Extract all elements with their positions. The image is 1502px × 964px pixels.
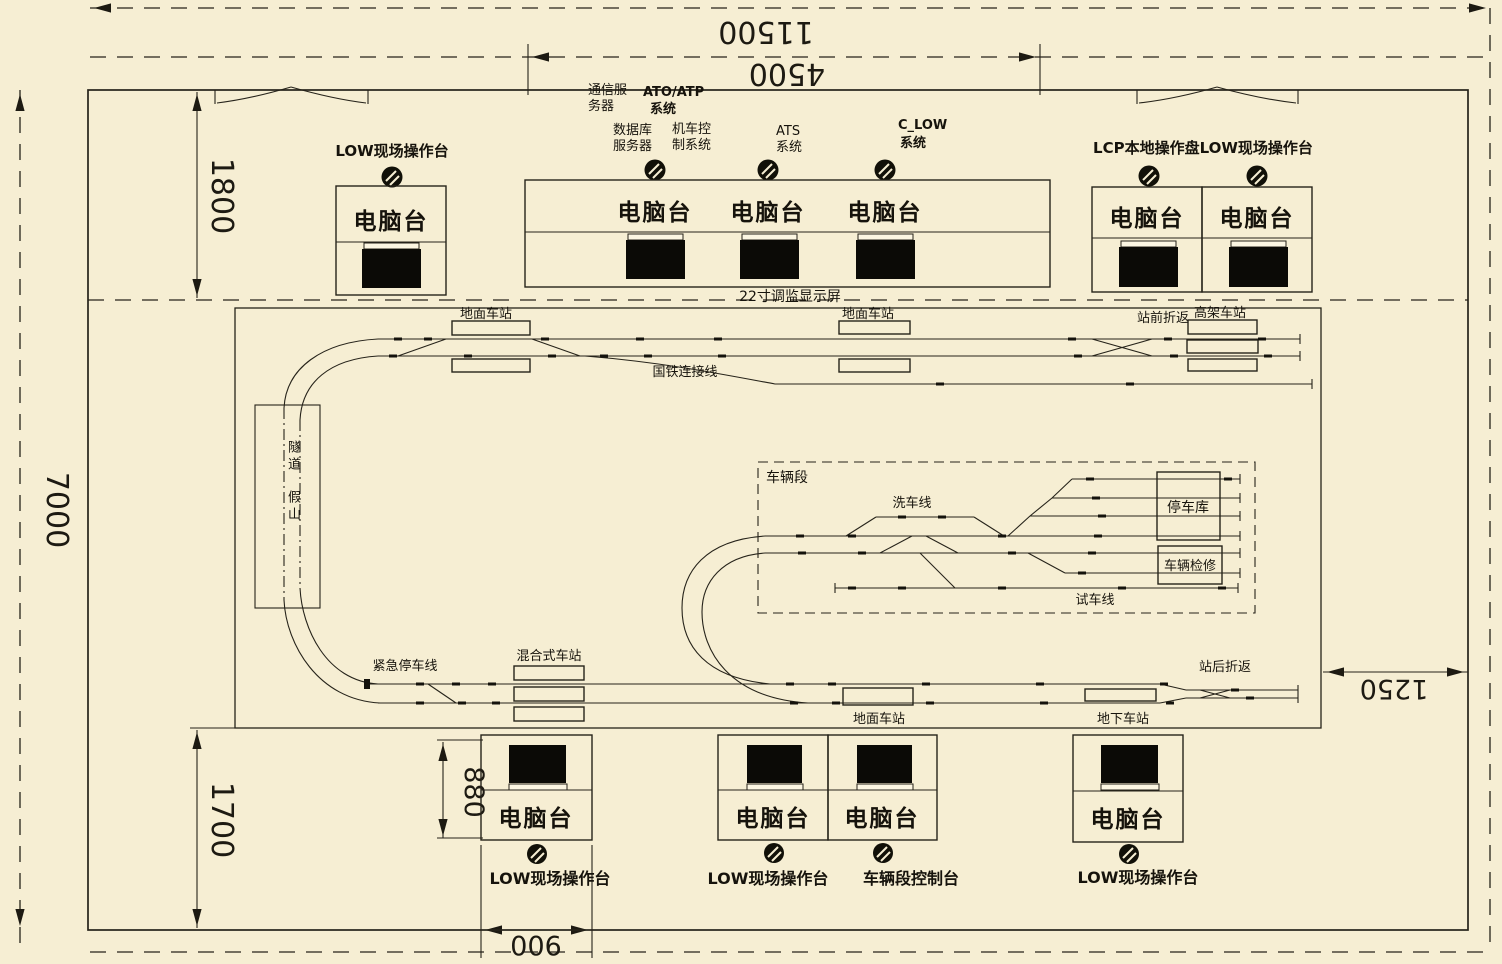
wash-line-label: 洗车线: [892, 495, 931, 511]
desk-label: 电脑台: [499, 805, 574, 832]
system-label: 服务器: [613, 138, 652, 154]
station-label-ground-top-mid: 地面车站: [842, 306, 894, 322]
desk-label: 电脑台: [354, 208, 429, 235]
console-caption: LOW现场操作台: [1078, 868, 1199, 887]
monitor: [857, 745, 912, 783]
track-layout: 地面车站 国铁连接线 地面车站 站前折返 高架车站 车辆段 洗车线 停车库 车辆…: [235, 305, 1321, 728]
desk-label: 电脑台: [1220, 205, 1295, 232]
chair-icon: [1139, 166, 1160, 187]
chair-icon: [875, 160, 896, 181]
system-label: 通信服: [588, 83, 627, 98]
loop-curve-inner: [300, 356, 378, 420]
system-label: ATO/ATP: [643, 85, 704, 100]
buffer-stop: [364, 679, 370, 689]
console-center: 通信服 务器 ATO/ATP 系统 数据库 服务器 机车控 制系统 ATS 系统…: [525, 83, 1050, 305]
chair-icon: [645, 160, 666, 181]
system-label: 机车控: [672, 121, 711, 137]
dim-text-7000: 7000: [39, 472, 74, 548]
station-label-ground-bottom: 地面车站: [853, 711, 905, 727]
dim-text-1800: 1800: [204, 158, 239, 234]
monitor: [509, 745, 566, 783]
tunnel-label: 隧道: [283, 440, 302, 474]
dim-text-900: 900: [510, 929, 562, 960]
console-bottom-1: 电脑台 LOW现场操作台: [481, 735, 610, 888]
emergency-stop-label: 紧急停车线: [372, 658, 437, 674]
front-turnback-label: 站前折返: [1137, 310, 1189, 326]
system-label: 数据库: [613, 122, 652, 138]
test-line-label: 试车线: [1075, 592, 1114, 608]
desk-label: 电脑台: [845, 805, 920, 832]
system-label: 系统: [900, 135, 926, 151]
monitor-base: [364, 243, 419, 249]
mixed-station-label: 混合式车站: [516, 648, 581, 664]
monitor: [362, 249, 421, 288]
chair-icon: [873, 843, 893, 863]
console-bottom-3: 电脑台 车辆段控制台: [828, 735, 959, 888]
crossover: [398, 339, 446, 356]
system-label: C_LOW: [898, 118, 947, 133]
console-bottom-4: 电脑台 LOW现场操作台: [1073, 735, 1198, 887]
dim-text-1250: 1250: [1360, 673, 1429, 704]
underground-station-platform: [1085, 689, 1156, 701]
system-label: ATS: [776, 124, 800, 139]
rockery-label: 假山: [283, 490, 302, 524]
national-rail-link-label: 国铁连接线: [652, 364, 717, 380]
desk-label: 电脑台: [618, 199, 693, 226]
desk-label: 电脑台: [1091, 806, 1166, 833]
station-label-ground-top-left: 地面车站: [460, 306, 512, 322]
dim-text-1700: 1700: [204, 782, 239, 858]
console-bottom-2: 电脑台 LOW现场操作台: [708, 735, 829, 888]
dim-text-880: 880: [458, 766, 489, 818]
console-caption: LOW现场操作台: [708, 869, 829, 888]
elevated-station-label: 高架车站: [1194, 305, 1246, 321]
chair-icon: [1247, 166, 1268, 187]
drawing-canvas: 11500 4500 1800 7000 1700 880 900 1250 L…: [0, 0, 1502, 964]
desk-label: 电脑台: [848, 199, 923, 226]
console-top-left: LOW现场操作台 电脑台: [335, 142, 448, 295]
chair-icon: [764, 843, 784, 863]
monitor: [1119, 247, 1178, 287]
system-label: 务器: [588, 98, 614, 114]
dim-text-4500: 4500: [749, 56, 825, 91]
depot-area: [682, 462, 1255, 703]
console-top-right: LCP本地操作盘LOW现场操作台 电脑台 电脑台: [1092, 139, 1313, 292]
depot-label: 车辆段: [766, 469, 808, 486]
monitor: [1101, 745, 1158, 783]
system-label: 制系统: [672, 138, 711, 153]
dim-text-11500: 11500: [718, 14, 813, 49]
chair-icon: [1119, 844, 1139, 864]
monitor: [740, 240, 799, 279]
rear-turnback-label: 站后折返: [1199, 660, 1251, 675]
mixed-station-platforms: [514, 666, 584, 721]
ground-station-top-mid-platforms: [839, 321, 910, 372]
system-label: 系统: [650, 101, 676, 117]
monitor: [626, 240, 685, 279]
parking-fan: [1008, 479, 1072, 536]
depot-outline: [758, 462, 1255, 613]
console-caption: LOW现场操作台: [490, 869, 611, 888]
chair-icon: [758, 160, 779, 181]
system-label: 系统: [776, 140, 802, 155]
crossover: [428, 684, 456, 703]
maintenance-label: 车辆检修: [1164, 558, 1216, 574]
depot-connector-2: [702, 553, 808, 703]
desk-label: 电脑台: [731, 199, 806, 226]
chair-icon: [382, 167, 403, 188]
parking-garage-label: 停车库: [1167, 499, 1209, 516]
depot-connector-1: [682, 536, 770, 684]
chair-icon: [527, 844, 547, 864]
underground-station-label: 地下车站: [1097, 711, 1149, 727]
floorplan-drawing: 11500 4500 1800 7000 1700 880 900 1250 L…: [0, 0, 1502, 964]
crossover: [532, 339, 580, 356]
desk-label: 电脑台: [736, 805, 811, 832]
console-caption: LOW现场操作台: [335, 142, 448, 160]
elevated-station-platforms: [1187, 320, 1258, 371]
desk-label: 电脑台: [1110, 205, 1185, 232]
monitor: [747, 745, 802, 783]
console-caption: LCP本地操作盘LOW现场操作台: [1093, 139, 1313, 157]
console-caption: 车辆段控制台: [863, 869, 959, 888]
monitor: [856, 240, 915, 279]
loop-curve-outer: [284, 339, 378, 408]
monitor-row-caption: 22寸调监显示屏: [739, 289, 841, 305]
monitor: [1229, 247, 1288, 287]
ground-station-top-left-platforms: [452, 321, 530, 372]
